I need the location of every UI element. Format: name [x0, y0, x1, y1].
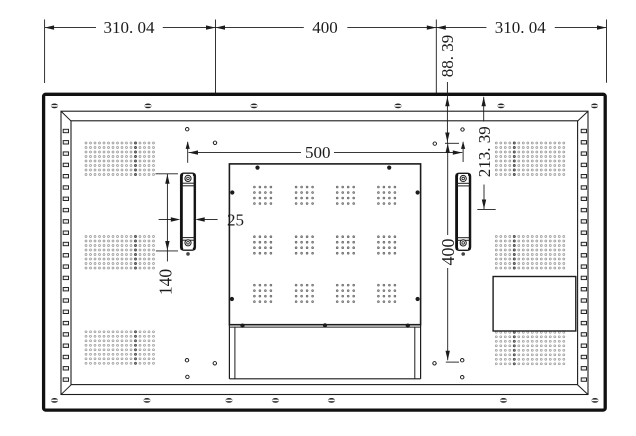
svg-text:400: 400 — [438, 239, 458, 266]
svg-text:310. 04: 310. 04 — [104, 18, 156, 37]
svg-text:310. 04: 310. 04 — [495, 18, 547, 37]
svg-text:400: 400 — [312, 18, 338, 37]
svg-text:500: 500 — [305, 143, 331, 162]
svg-text:140: 140 — [156, 269, 176, 296]
svg-text:25: 25 — [227, 211, 244, 230]
svg-text:213. 39: 213. 39 — [475, 126, 494, 177]
svg-text:88. 39: 88. 39 — [438, 35, 457, 78]
